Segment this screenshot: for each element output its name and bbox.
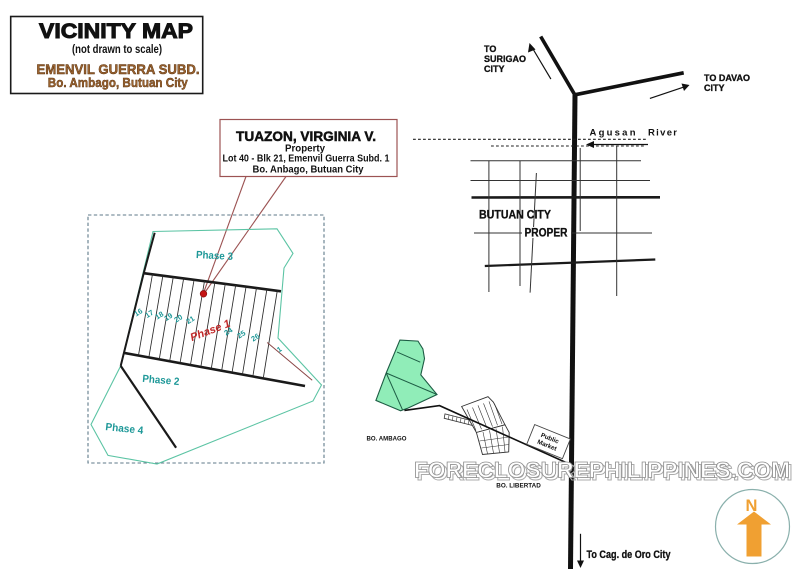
svg-text:Bo. Ambago, Butuan City: Bo. Ambago, Butuan City <box>48 75 189 90</box>
svg-text:SURIGAO: SURIGAO <box>484 54 526 64</box>
svg-text:N: N <box>746 497 758 515</box>
svg-text:BO. AMBAGO: BO. AMBAGO <box>367 436 407 443</box>
svg-text:TO DAVAO: TO DAVAO <box>704 73 750 83</box>
svg-text:TUAZON, VIRGINIA V.: TUAZON, VIRGINIA V. <box>236 129 376 144</box>
svg-text:Phase 3: Phase 3 <box>196 249 234 263</box>
svg-text:CITY: CITY <box>704 83 725 93</box>
svg-text:BUTUAN CITY: BUTUAN CITY <box>479 210 551 222</box>
svg-text:FORECLOSUREPHILIPPINES.COM: FORECLOSUREPHILIPPINES.COM <box>414 458 790 483</box>
svg-text:TO: TO <box>484 44 496 54</box>
svg-text:(not drawn to scale): (not drawn to scale) <box>72 44 162 56</box>
svg-text:Bo. Anbago, Butuan City: Bo. Anbago, Butuan City <box>253 164 364 176</box>
svg-text:PROPER: PROPER <box>525 228 569 240</box>
svg-text:To Cag. de Oro City: To Cag. de Oro City <box>587 549 672 561</box>
svg-text:VICINITY MAP: VICINITY MAP <box>39 20 193 43</box>
svg-text:CITY: CITY <box>484 64 505 74</box>
svg-text:BO. LIBERTAD: BO. LIBERTAD <box>496 483 541 490</box>
svg-text:River: River <box>648 128 677 139</box>
